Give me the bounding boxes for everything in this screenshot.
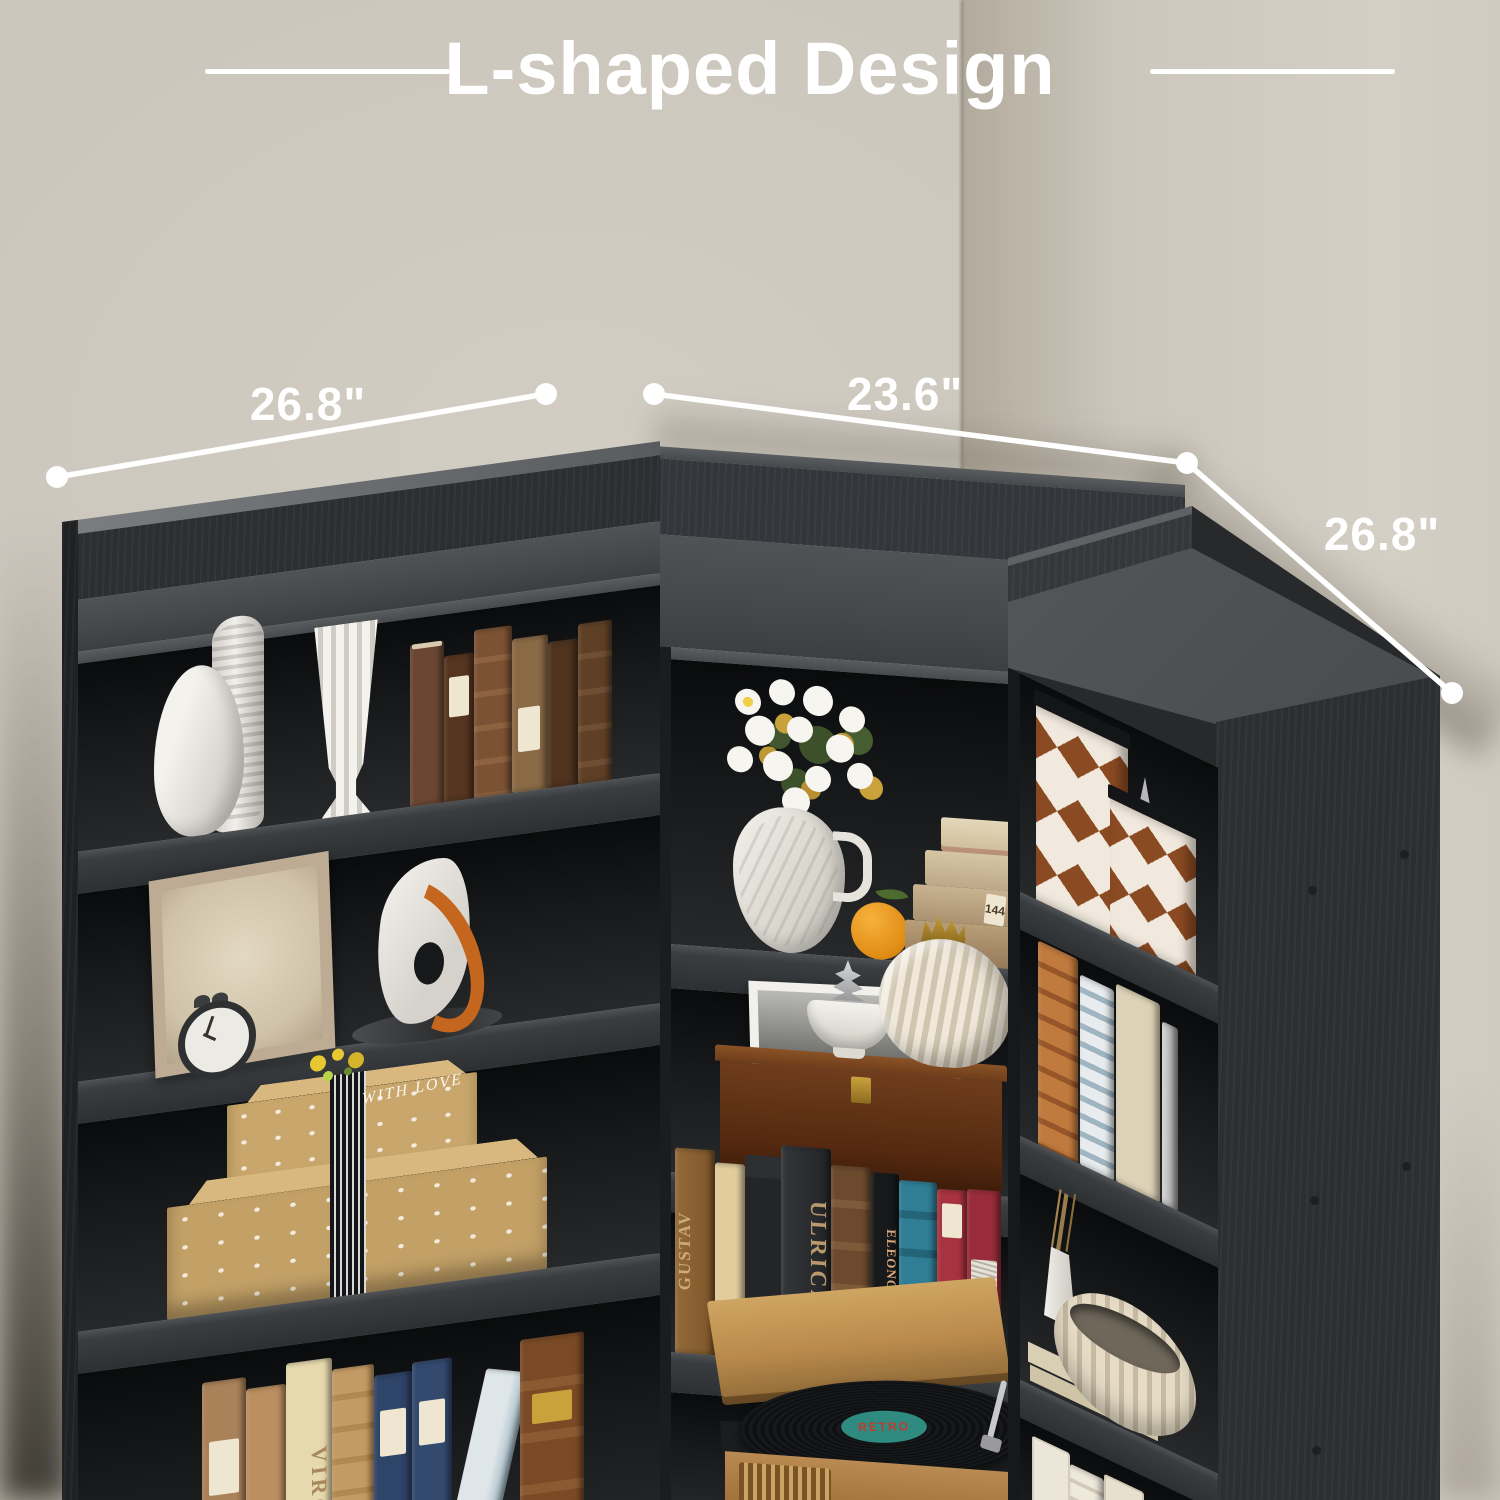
dimension-label-right: 26.8" bbox=[1324, 507, 1440, 561]
dimension-dot bbox=[1176, 452, 1198, 474]
dimension-line-right bbox=[1187, 463, 1452, 693]
dimension-dot bbox=[643, 383, 665, 405]
dimension-dot bbox=[1441, 682, 1463, 704]
product-showcase-image: 144 GUSTAV ULRICA ELEONORA bbox=[0, 0, 1500, 1500]
dimension-dot bbox=[46, 466, 68, 488]
dimension-label-middle: 23.6" bbox=[847, 367, 963, 421]
dimension-lines-overlay bbox=[0, 0, 1500, 1500]
dimension-label-left: 26.8" bbox=[250, 377, 366, 431]
title-block: L-shaped Design bbox=[0, 26, 1500, 111]
dimension-dot bbox=[535, 383, 557, 405]
page-title: L-shaped Design bbox=[444, 26, 1055, 111]
